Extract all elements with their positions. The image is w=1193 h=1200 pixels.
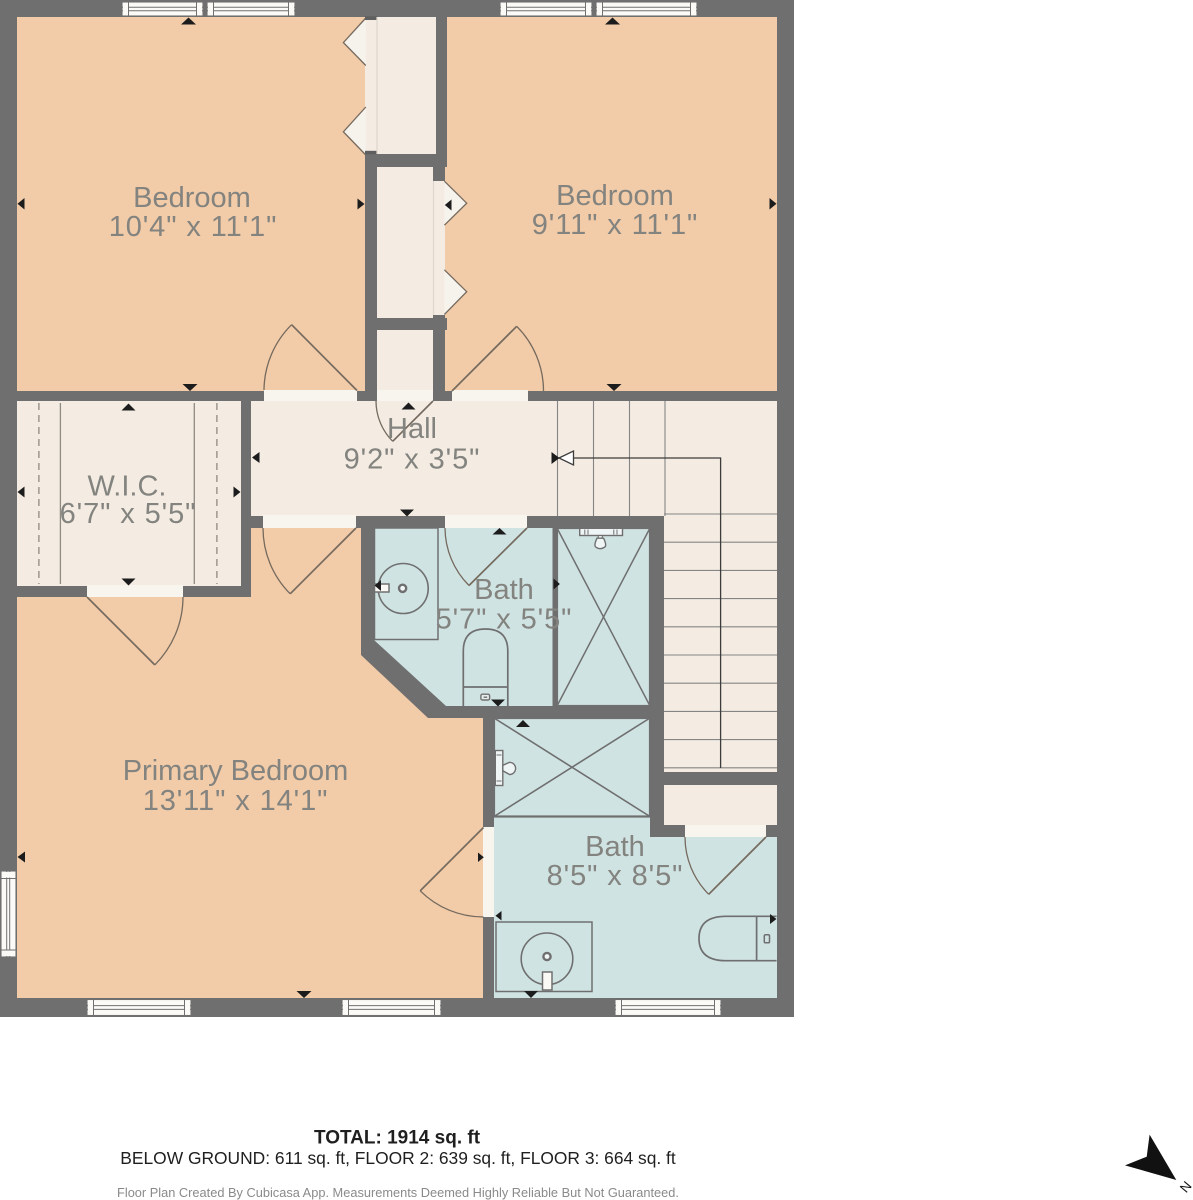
svg-text:10'4" x 11'1": 10'4" x 11'1" (109, 211, 278, 243)
svg-text:13'11" x 14'1": 13'11" x 14'1" (143, 785, 329, 817)
svg-text:6'7" x 5'5": 6'7" x 5'5" (60, 498, 197, 530)
svg-text:Floor Plan Created By Cubicasa: Floor Plan Created By Cubicasa App. Meas… (117, 1185, 679, 1200)
svg-text:8'5" x 8'5": 8'5" x 8'5" (547, 860, 684, 892)
svg-text:Hall: Hall (387, 413, 437, 445)
svg-text:Primary Bedroom: Primary Bedroom (123, 755, 349, 787)
svg-text:5'7" x 5'5": 5'7" x 5'5" (436, 604, 573, 636)
svg-text:BELOW GROUND: 611 sq. ft, FLOO: BELOW GROUND: 611 sq. ft, FLOOR 2: 639 s… (120, 1148, 676, 1168)
svg-text:Bedroom: Bedroom (133, 182, 251, 214)
svg-text:Bath: Bath (585, 831, 645, 863)
svg-text:9'2" x 3'5": 9'2" x 3'5" (344, 444, 481, 476)
svg-text:9'11" x 11'1": 9'11" x 11'1" (532, 209, 698, 241)
svg-text:Bedroom: Bedroom (556, 180, 674, 212)
svg-text:N: N (1177, 1178, 1193, 1195)
svg-text:TOTAL: 1914 sq. ft: TOTAL: 1914 sq. ft (314, 1128, 481, 1149)
svg-text:Bath: Bath (474, 574, 534, 606)
